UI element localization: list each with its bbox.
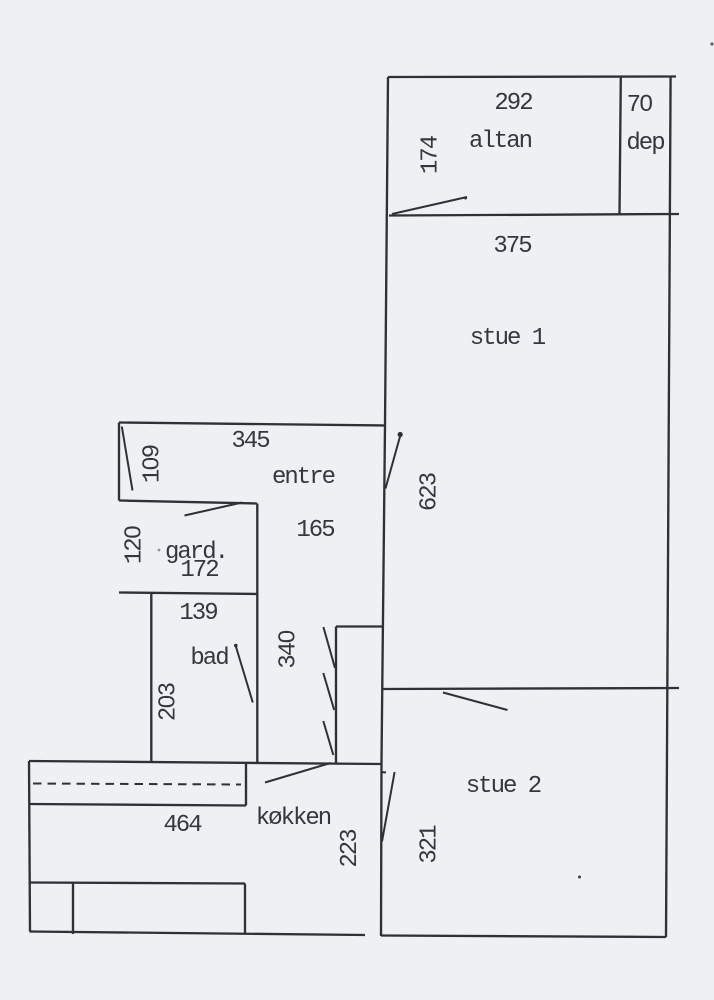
svg-text:464: 464 (163, 812, 202, 839)
svg-text:321: 321 (417, 825, 444, 864)
svg-text:375: 375 (493, 233, 531, 260)
svg-text:172: 172 (180, 557, 218, 584)
svg-text:køkken: køkken (256, 805, 331, 832)
svg-text:stue 1: stue 1 (470, 325, 546, 352)
svg-text:dep: dep (626, 130, 664, 157)
svg-text:174: 174 (418, 135, 445, 174)
svg-text:entre: entre (272, 464, 335, 491)
svg-text:139: 139 (179, 600, 217, 627)
svg-text:623: 623 (417, 473, 444, 511)
svg-text:165: 165 (296, 517, 334, 544)
svg-text:altan: altan (469, 128, 532, 155)
svg-text:345: 345 (231, 428, 269, 455)
svg-text:stue 2: stue 2 (466, 773, 541, 800)
svg-text:292: 292 (494, 90, 532, 117)
svg-text:bad: bad (190, 645, 228, 672)
svg-text:223: 223 (337, 830, 364, 868)
